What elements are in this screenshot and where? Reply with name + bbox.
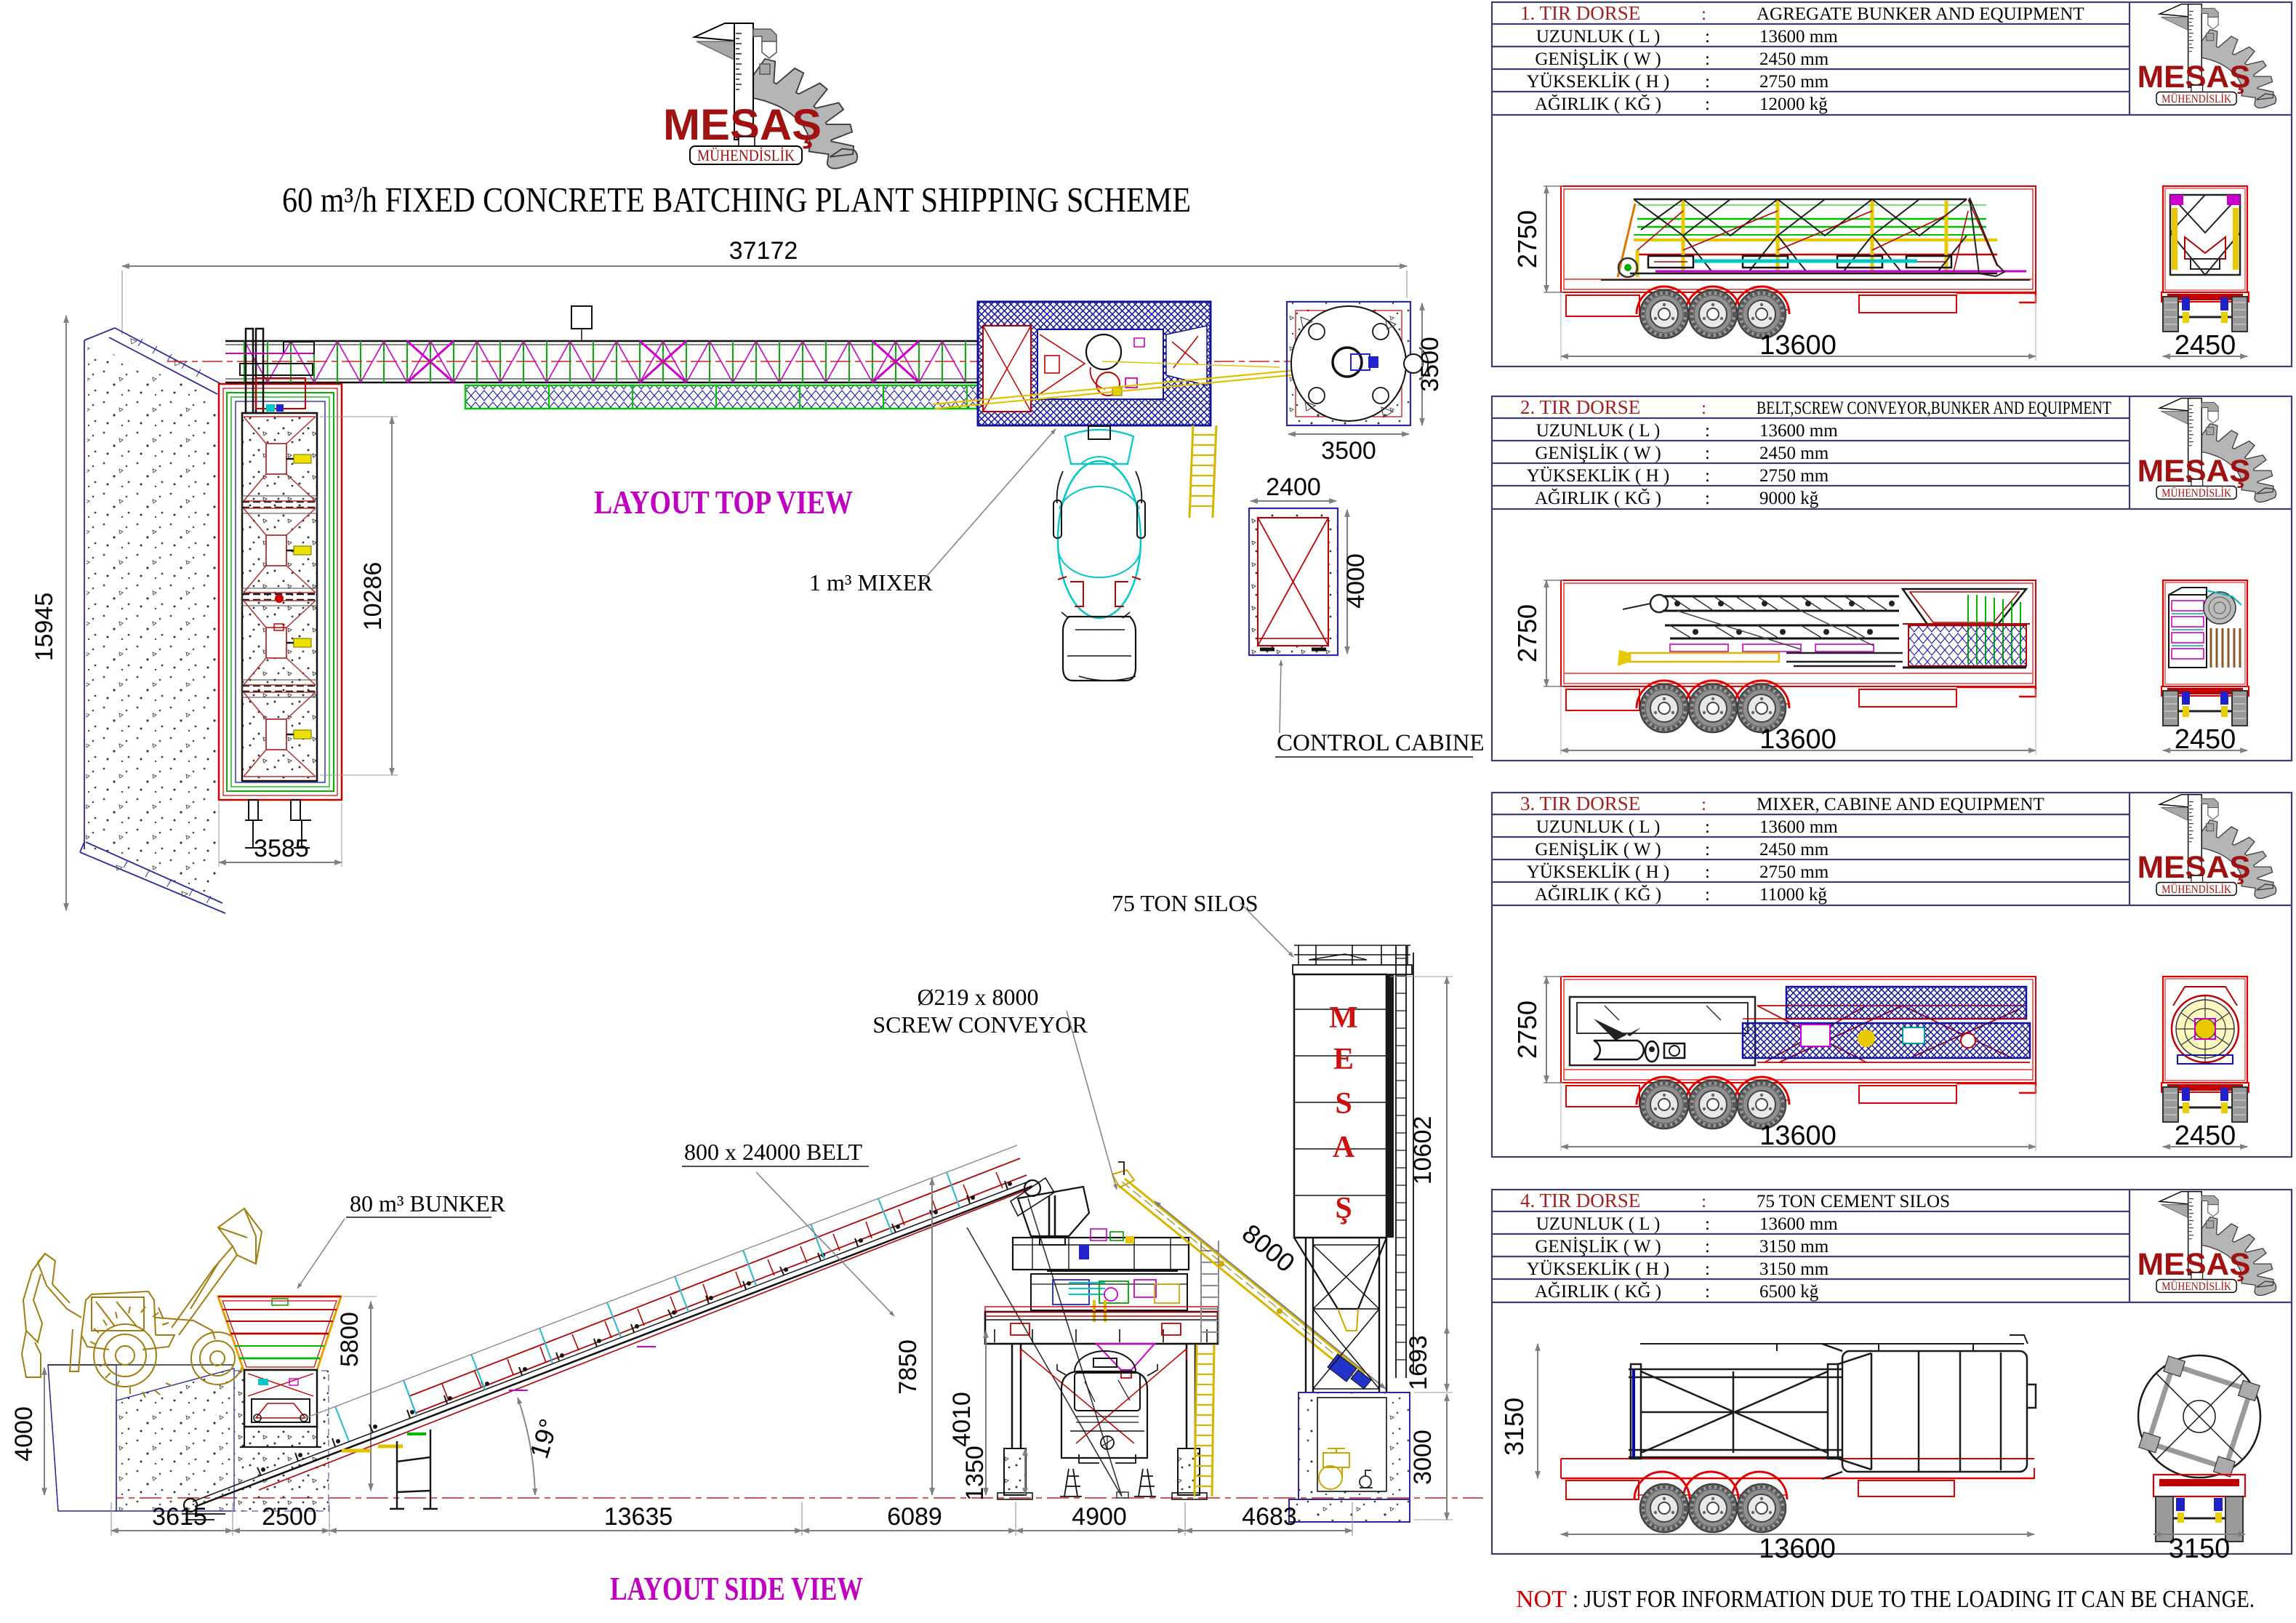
- svg-text:YÜKSEKLİK ( H ): YÜKSEKLİK ( H ): [1527, 466, 1670, 486]
- svg-text:3. TIR DORSE: 3. TIR DORSE: [1520, 793, 1640, 814]
- svg-text:LAYOUT TOP VIEW: LAYOUT TOP VIEW: [594, 484, 853, 521]
- svg-text:YÜKSEKLİK ( H ): YÜKSEKLİK ( H ): [1527, 72, 1670, 92]
- svg-text::: :: [1701, 398, 1706, 418]
- svg-text:2750 mm: 2750 mm: [1759, 862, 1829, 882]
- svg-text:2450 mm: 2450 mm: [1759, 444, 1829, 463]
- svg-text::: :: [1705, 489, 1710, 508]
- svg-text:80 m³ BUNKER: 80 m³ BUNKER: [350, 1190, 506, 1217]
- svg-text:3150: 3150: [2169, 1534, 2231, 1564]
- svg-text::: :: [1705, 72, 1710, 92]
- svg-text:UZUNLUK ( L ): UZUNLUK ( L ): [1536, 1214, 1661, 1234]
- svg-text:60 m³/h FIXED CONCRETE BATCHIN: 60 m³/h FIXED CONCRETE BATCHING PLANT SH…: [282, 180, 1191, 220]
- svg-text:2750 mm: 2750 mm: [1759, 72, 1829, 92]
- svg-text:A: A: [1333, 1131, 1355, 1164]
- svg-text:13600: 13600: [1759, 330, 1837, 361]
- svg-text:13600 mm: 13600 mm: [1759, 817, 1838, 837]
- svg-text:3150 mm: 3150 mm: [1759, 1259, 1829, 1279]
- svg-text:4900: 4900: [1072, 1503, 1127, 1531]
- svg-text:UZUNLUK ( L ): UZUNLUK ( L ): [1536, 817, 1661, 837]
- svg-text:3615: 3615: [152, 1503, 207, 1531]
- svg-text:GENİŞLİK ( W ): GENİŞLİK ( W ): [1535, 444, 1661, 463]
- svg-text:3500: 3500: [1416, 337, 1444, 392]
- svg-text:6500 kğ: 6500 kğ: [1759, 1282, 1819, 1302]
- svg-text:11000 kğ: 11000 kğ: [1759, 885, 1827, 905]
- svg-text::: :: [1701, 4, 1706, 24]
- svg-text:LAYOUT SIDE VIEW: LAYOUT SIDE VIEW: [610, 1570, 863, 1607]
- svg-text::: :: [1705, 49, 1710, 69]
- svg-text:: JUST FOR INFORMATION DUE TO: : JUST FOR INFORMATION DUE TO THE LOADIN…: [1573, 1586, 2255, 1613]
- svg-text::: :: [1705, 1259, 1710, 1279]
- svg-text:13600 mm: 13600 mm: [1759, 1214, 1838, 1234]
- svg-text:15945: 15945: [31, 593, 58, 662]
- svg-text:1350: 1350: [961, 1446, 989, 1501]
- svg-text:13600 mm: 13600 mm: [1759, 27, 1838, 47]
- svg-text:2450 mm: 2450 mm: [1759, 840, 1829, 859]
- svg-text:2450: 2450: [2175, 1121, 2236, 1151]
- svg-text:M: M: [1329, 1001, 1358, 1035]
- svg-text:1693: 1693: [1405, 1335, 1432, 1390]
- svg-text:13635: 13635: [604, 1503, 673, 1531]
- svg-text:2750: 2750: [1512, 210, 1542, 268]
- svg-text:Ş: Ş: [1335, 1192, 1352, 1225]
- svg-text:YÜKSEKLİK ( H ): YÜKSEKLİK ( H ): [1527, 862, 1670, 882]
- svg-text:3000: 3000: [1409, 1430, 1437, 1485]
- svg-text:AGREGATE BUNKER AND EQUIPMENT: AGREGATE BUNKER AND EQUIPMENT: [1757, 4, 2084, 24]
- svg-text:75 TON CEMENT SILOS: 75 TON CEMENT SILOS: [1757, 1192, 1950, 1211]
- svg-text:GENİŞLİK ( W ): GENİŞLİK ( W ): [1535, 1237, 1661, 1257]
- svg-text:2450: 2450: [2175, 330, 2236, 361]
- svg-text:AĞIRLIK ( KĞ ): AĞIRLIK ( KĞ ): [1535, 94, 1661, 114]
- svg-text::: :: [1705, 862, 1710, 882]
- svg-text:YÜKSEKLİK ( H ): YÜKSEKLİK ( H ): [1527, 1259, 1670, 1279]
- svg-text:10286: 10286: [359, 562, 387, 631]
- svg-text:5800: 5800: [336, 1312, 364, 1367]
- svg-text::: :: [1705, 840, 1710, 859]
- svg-text:75 TON SILOS: 75 TON SILOS: [1112, 890, 1259, 916]
- svg-text:10602: 10602: [1409, 1116, 1437, 1185]
- svg-text:AĞIRLIK ( KĞ ): AĞIRLIK ( KĞ ): [1535, 1281, 1661, 1302]
- svg-text::: :: [1701, 795, 1706, 814]
- svg-text:2450 mm: 2450 mm: [1759, 49, 1829, 69]
- svg-text::: :: [1705, 1282, 1710, 1302]
- svg-text:2500: 2500: [262, 1503, 317, 1531]
- svg-text:MIXER, CABINE AND EQUIPMENT: MIXER, CABINE AND EQUIPMENT: [1757, 795, 2044, 814]
- svg-text:GENİŞLİK ( W ): GENİŞLİK ( W ): [1535, 49, 1661, 69]
- svg-text:7850: 7850: [894, 1339, 922, 1395]
- svg-text::: :: [1705, 1214, 1710, 1234]
- svg-text::: :: [1705, 444, 1710, 463]
- svg-text:NOT: NOT: [1516, 1586, 1567, 1613]
- svg-text:GENİŞLİK ( W ): GENİŞLİK ( W ): [1535, 840, 1661, 859]
- svg-text:2450: 2450: [2175, 724, 2236, 755]
- svg-text:4000: 4000: [1342, 553, 1370, 609]
- svg-text:SCREW CONVEYOR: SCREW CONVEYOR: [872, 1011, 1088, 1038]
- svg-text:13600: 13600: [1759, 1534, 1836, 1564]
- svg-text::: :: [1705, 885, 1710, 905]
- svg-text:13600 mm: 13600 mm: [1759, 421, 1838, 441]
- svg-text:4683: 4683: [1242, 1503, 1297, 1531]
- svg-text:1 m³ MIXER: 1 m³ MIXER: [809, 569, 933, 596]
- svg-text:13600: 13600: [1759, 724, 1837, 755]
- svg-text::: :: [1705, 421, 1710, 441]
- svg-text::: :: [1701, 1192, 1706, 1211]
- svg-text:12000 kğ: 12000 kğ: [1759, 95, 1828, 114]
- svg-text:37172: 37172: [729, 237, 798, 265]
- svg-text:6089: 6089: [887, 1503, 942, 1531]
- svg-text:2400: 2400: [1266, 473, 1321, 501]
- svg-text:BELT,SCREW CONVEYOR,BUNKER AND: BELT,SCREW CONVEYOR,BUNKER AND EQUIPMENT: [1757, 398, 2111, 418]
- svg-text:2750 mm: 2750 mm: [1759, 466, 1829, 486]
- svg-text:2750: 2750: [1512, 1001, 1542, 1059]
- svg-text:2. TIR DORSE: 2. TIR DORSE: [1520, 396, 1640, 418]
- svg-text:3150: 3150: [1499, 1398, 1529, 1456]
- svg-text:2750: 2750: [1512, 604, 1542, 662]
- svg-text:4000: 4000: [10, 1406, 38, 1462]
- svg-text:UZUNLUK ( L ): UZUNLUK ( L ): [1536, 421, 1661, 441]
- svg-text:1. TIR DORSE: 1. TIR DORSE: [1520, 2, 1640, 24]
- svg-text:UZUNLUK ( L ): UZUNLUK ( L ): [1536, 27, 1661, 47]
- svg-text:S: S: [1335, 1087, 1352, 1121]
- svg-text:800 x 24000 BELT: 800 x 24000 BELT: [684, 1139, 863, 1165]
- svg-text:4. TIR DORSE: 4. TIR DORSE: [1520, 1190, 1640, 1211]
- svg-text:3150 mm: 3150 mm: [1759, 1237, 1829, 1257]
- svg-text::: :: [1705, 27, 1710, 47]
- svg-text:3585: 3585: [254, 835, 309, 862]
- svg-text::: :: [1705, 1237, 1710, 1257]
- svg-text:4010: 4010: [948, 1392, 976, 1447]
- svg-text:3500: 3500: [1321, 437, 1376, 465]
- svg-text:AĞIRLIK ( KĞ ): AĞIRLIK ( KĞ ): [1535, 884, 1661, 905]
- svg-text:E: E: [1333, 1043, 1354, 1076]
- svg-text:CONTROL CABINE: CONTROL CABINE: [1277, 730, 1485, 756]
- svg-text:13600: 13600: [1759, 1121, 1837, 1151]
- svg-text::: :: [1705, 95, 1710, 114]
- svg-text:9000 kğ: 9000 kğ: [1759, 489, 1819, 508]
- svg-text:Ø219 x 8000: Ø219 x 8000: [917, 984, 1038, 1010]
- svg-text:AĞIRLIK ( KĞ ): AĞIRLIK ( KĞ ): [1535, 488, 1661, 508]
- svg-text::: :: [1705, 466, 1710, 486]
- svg-text::: :: [1705, 817, 1710, 837]
